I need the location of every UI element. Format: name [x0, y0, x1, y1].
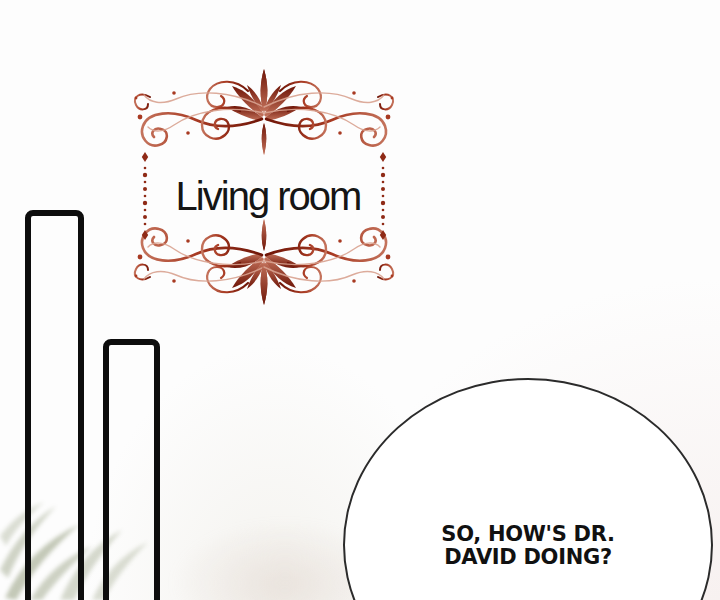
- door-frame-bar-left: [25, 210, 84, 600]
- door-frame-bar-right: [103, 339, 160, 600]
- speech-bubble: SO, HOW'S DR. DAVID DOING?: [343, 378, 713, 600]
- speech-text: SO, HOW'S DR. DAVID DOING?: [345, 523, 711, 569]
- comic-panel: Living room SO, HOW'S DR. DAVID DOING?: [0, 0, 720, 600]
- speech-line-1: SO, HOW'S DR.: [345, 523, 711, 546]
- location-title: Living room: [128, 176, 408, 216]
- speech-line-2: DAVID DOING?: [345, 546, 711, 569]
